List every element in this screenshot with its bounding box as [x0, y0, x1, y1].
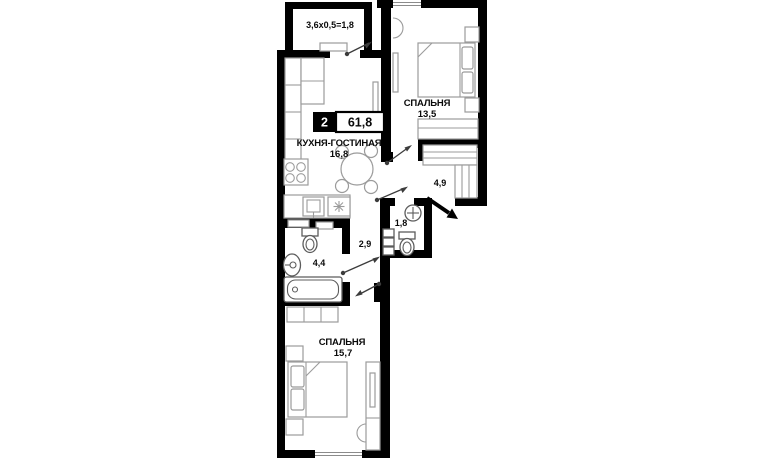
apartment-floorplan: 3,6x0,5=1,8 2 61,8 СПАЛЬНЯ 13,5 КУХНЯ-ГО…	[0, 0, 762, 463]
bedroom-2-furniture	[286, 307, 380, 450]
nightstand	[286, 346, 303, 361]
wc-sink	[405, 205, 421, 221]
door-arc	[393, 18, 403, 38]
toilet	[302, 228, 318, 253]
nightstand	[465, 98, 479, 112]
bed-double	[418, 43, 475, 97]
bed-double	[288, 362, 347, 417]
bathroom-area: 4,4	[313, 258, 326, 268]
kitchen-living-area: 16,8	[330, 149, 349, 160]
bedroom-2-area: 15,7	[334, 348, 353, 359]
rooms-count-badge: 2	[321, 116, 328, 130]
hall-closet	[423, 145, 477, 198]
wc-area: 1,8	[395, 218, 408, 228]
kitchen-sink	[303, 197, 324, 218]
dresser	[287, 307, 338, 322]
stove	[284, 159, 308, 185]
bedroom-1-area: 13,5	[418, 109, 437, 120]
wc-shelves	[383, 229, 394, 255]
bathroom-sink	[284, 254, 301, 276]
bathroom-door-arrow	[341, 257, 380, 276]
kitchen-living-name: КУХНЯ-ГОСТИНАЯ	[297, 138, 382, 149]
wardrobe-bedroom-1	[418, 119, 478, 139]
nightstand	[286, 419, 303, 435]
chair	[357, 424, 366, 442]
hall-area: 4,9	[434, 178, 447, 188]
corridor-area: 2,9	[359, 239, 372, 249]
wall-niche	[288, 220, 309, 227]
total-area-value: 61,8	[348, 116, 372, 130]
balcony-dimensions-label: 3,6x0,5=1,8	[306, 20, 354, 30]
total-area-badge: 2 61,8	[313, 112, 384, 132]
bedroom-1-name: СПАЛЬНЯ	[404, 98, 451, 109]
nightstand	[465, 27, 479, 42]
wardrobe-bedroom-2	[357, 362, 380, 450]
floorplan-canvas: 3,6x0,5=1,8 2 61,8 СПАЛЬНЯ 13,5 КУХНЯ-ГО…	[0, 0, 762, 463]
bathtub	[284, 277, 342, 302]
balcony-door-sill	[320, 43, 347, 51]
bedroom-2-name: СПАЛЬНЯ	[319, 337, 366, 348]
bedroom-1-furniture	[393, 18, 479, 139]
tv-bedroom-1	[393, 53, 398, 92]
tv-bedroom-2	[370, 373, 375, 407]
kitchen-counter	[284, 195, 350, 218]
wc-toilet	[399, 232, 415, 256]
dishwasher-icon	[328, 197, 350, 216]
